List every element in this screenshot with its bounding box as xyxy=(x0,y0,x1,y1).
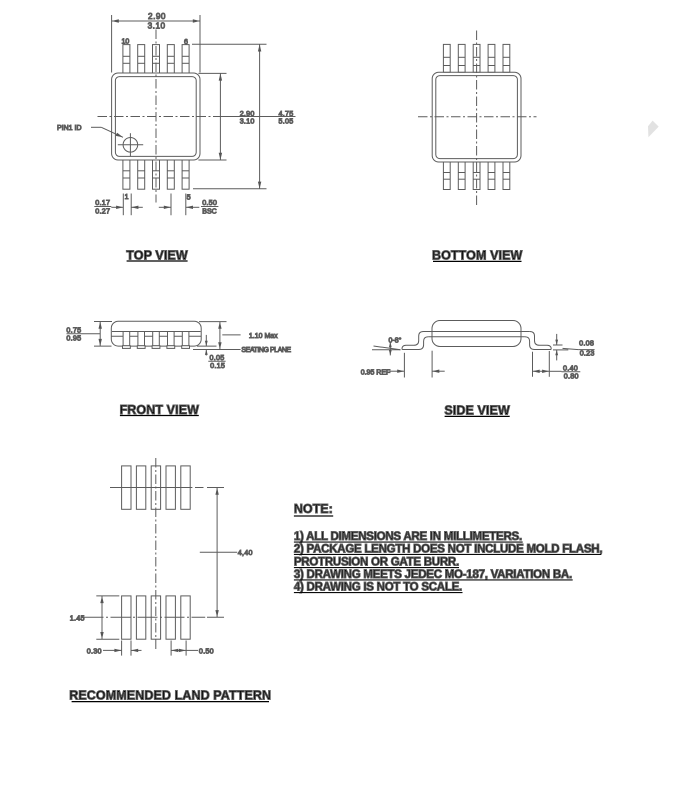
svg-text:1.45: 1.45 xyxy=(70,614,85,623)
svg-text:10: 10 xyxy=(122,39,130,46)
svg-text:0.27: 0.27 xyxy=(95,206,110,215)
svg-text:0.80: 0.80 xyxy=(564,372,579,381)
svg-text:1.10 Max: 1.10 Max xyxy=(249,333,278,340)
svg-text:0.50: 0.50 xyxy=(199,646,214,655)
svg-text:5.05: 5.05 xyxy=(279,117,294,126)
svg-text:SEATING PLANE: SEATING PLANE xyxy=(241,347,291,354)
svg-text:PIN1 ID: PIN1 ID xyxy=(57,125,82,132)
svg-text:2) PACKAGE LENGTH DOES NOT INC: 2) PACKAGE LENGTH DOES NOT INCLUDE MOLD … xyxy=(294,543,602,555)
svg-text:BOTTOM VIEW: BOTTOM VIEW xyxy=(432,249,523,263)
svg-text:6: 6 xyxy=(184,39,188,46)
svg-text:RECOMMENDED LAND PATTERN: RECOMMENDED LAND PATTERN xyxy=(69,688,271,702)
svg-text:3) DRAWING MEETS JEDEC MO-187,: 3) DRAWING MEETS JEDEC MO-187, VARIATION… xyxy=(294,569,572,581)
svg-text:FRONT VIEW: FRONT VIEW xyxy=(120,403,200,417)
svg-text:5: 5 xyxy=(187,194,191,201)
svg-text:0.15: 0.15 xyxy=(210,361,225,370)
svg-text:PROTRUSION OR GATE BURR.: PROTRUSION OR GATE BURR. xyxy=(294,557,459,569)
svg-text:0.95 REF: 0.95 REF xyxy=(361,369,391,376)
svg-text:4) DRAWING IS NOT TO SCALE.: 4) DRAWING IS NOT TO SCALE. xyxy=(294,582,462,594)
svg-text:0.08: 0.08 xyxy=(579,339,594,348)
svg-text:2.90: 2.90 xyxy=(148,12,166,21)
svg-text:3.10: 3.10 xyxy=(240,117,255,126)
svg-text:TOP VIEW: TOP VIEW xyxy=(126,248,188,262)
svg-text:BSC: BSC xyxy=(202,208,216,215)
svg-text:1) ALL DIMENSIONS ARE IN MILLI: 1) ALL DIMENSIONS ARE IN MILLIMETERS. xyxy=(294,531,522,543)
svg-text:0.30: 0.30 xyxy=(87,646,102,655)
svg-text:3.10: 3.10 xyxy=(148,22,166,31)
svg-text:1: 1 xyxy=(125,194,129,201)
svg-text:NOTE:: NOTE: xyxy=(294,502,333,516)
svg-text:0.95: 0.95 xyxy=(66,333,81,342)
svg-text:4,40: 4,40 xyxy=(238,548,253,557)
svg-text:0.50: 0.50 xyxy=(202,198,217,207)
svg-text:SIDE VIEW: SIDE VIEW xyxy=(444,404,510,418)
svg-text:0.23: 0.23 xyxy=(580,349,595,358)
